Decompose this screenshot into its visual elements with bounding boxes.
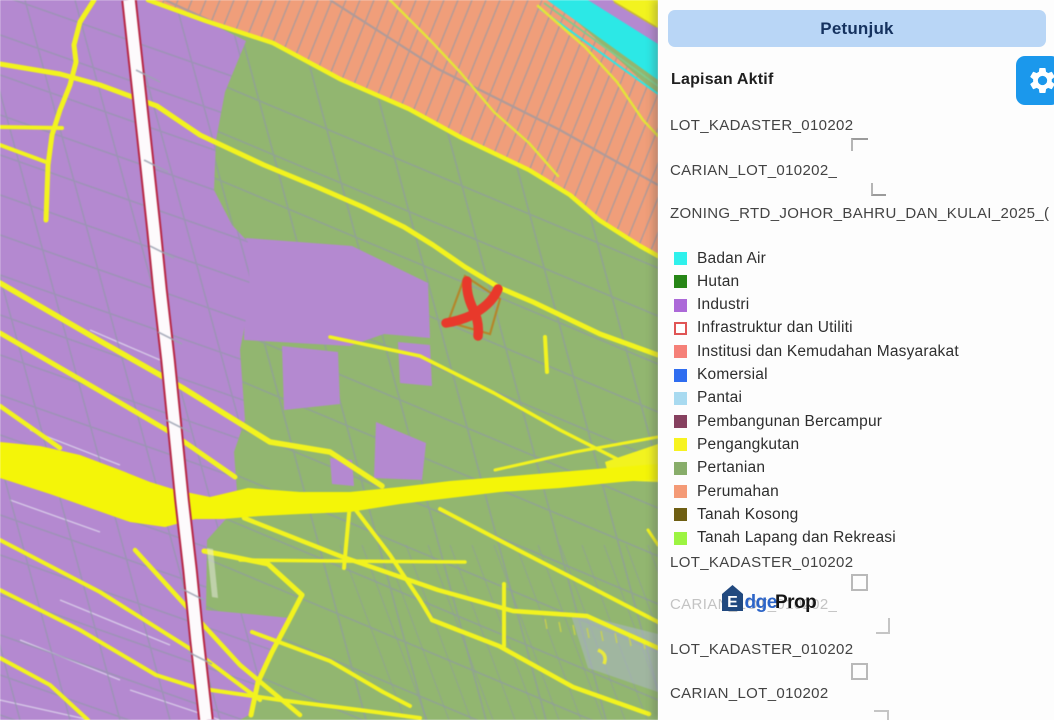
svg-text:Prop: Prop xyxy=(775,592,816,613)
svg-text:dge: dge xyxy=(745,592,777,613)
svg-text:E: E xyxy=(727,594,738,611)
